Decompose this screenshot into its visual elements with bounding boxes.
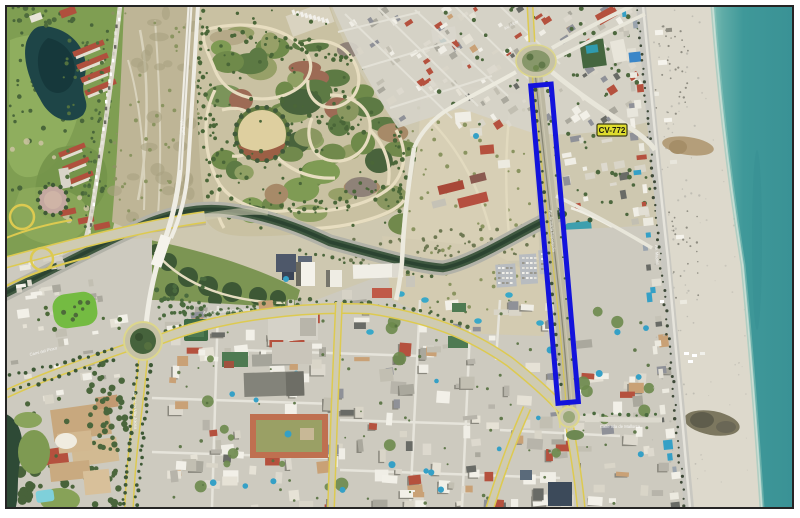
svg-text:Calle Isla de Mallorca: Calle Isla de Mallorca bbox=[600, 424, 641, 429]
svg-text:Av. Madrid: Av. Madrid bbox=[654, 245, 660, 266]
svg-text:CV-772: CV-772 bbox=[599, 126, 626, 135]
